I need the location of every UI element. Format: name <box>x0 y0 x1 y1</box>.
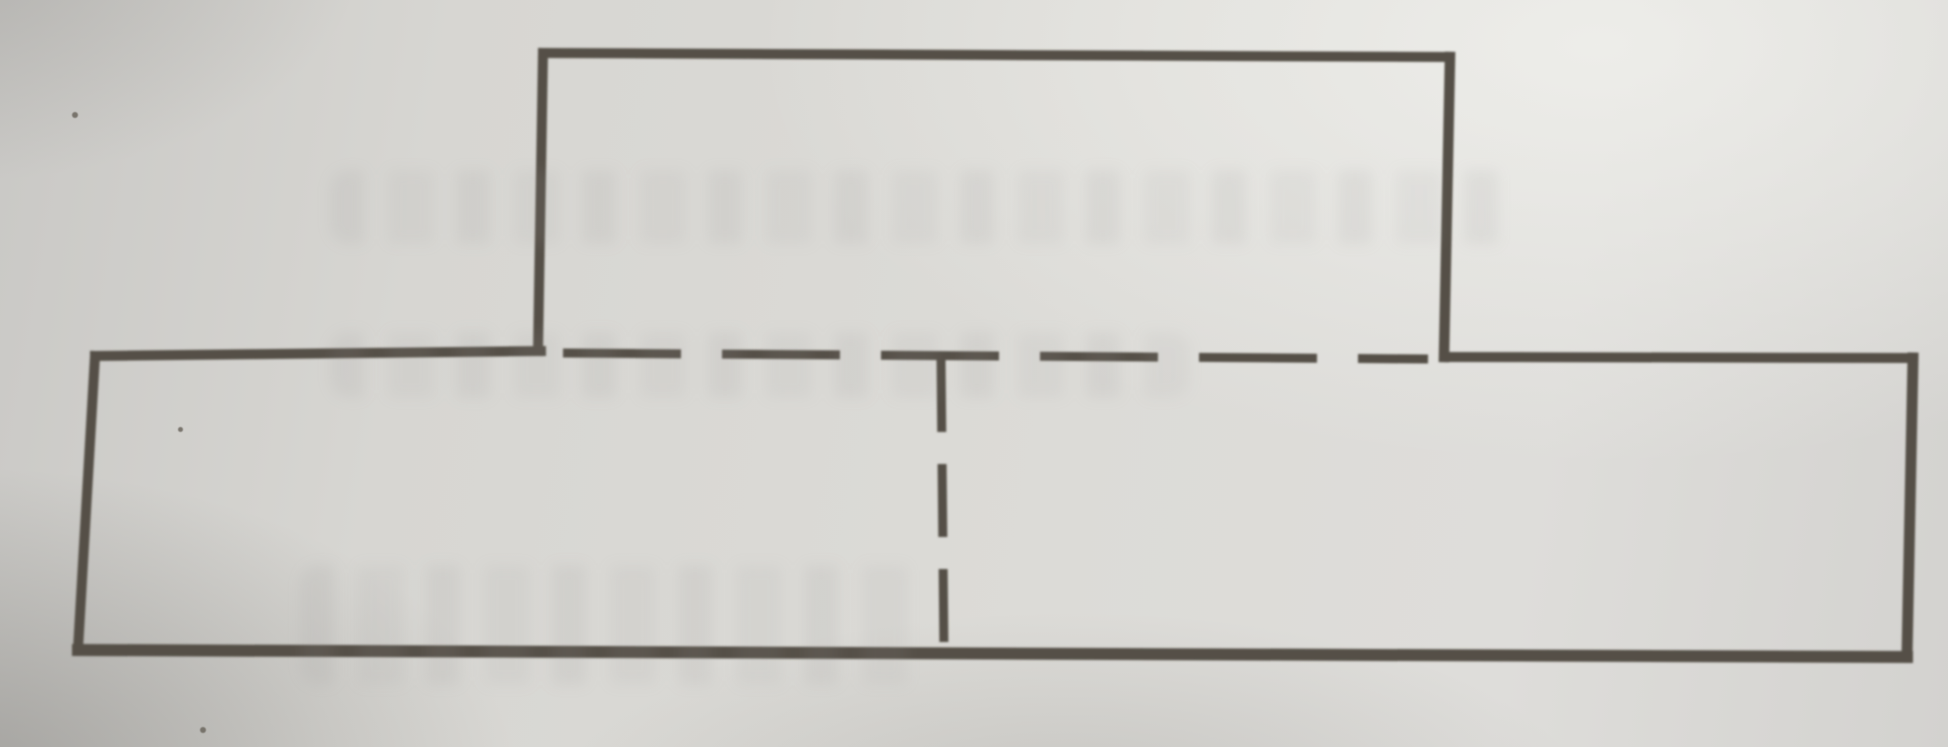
scanned-page-photo <box>0 0 1948 747</box>
top-rect-right-edge <box>1444 57 1450 357</box>
figure-line-group <box>78 53 1913 657</box>
bottom-rect-left-edge <box>78 356 95 649</box>
bottom-rect-right-edge <box>1907 358 1913 656</box>
bottom-rect-top-edge-left <box>95 351 541 356</box>
paper-speck <box>200 727 206 733</box>
paper-speck <box>178 427 183 432</box>
paper-speck <box>72 112 78 118</box>
vertical-midline-dashed-line <box>941 359 944 653</box>
bottom-rect-bottom-edge <box>78 650 1907 657</box>
top-rect-top-edge <box>543 53 1450 57</box>
top-rect-left-edge <box>538 53 543 351</box>
shared-edge-dashed-line <box>563 353 1428 359</box>
bottom-rect-top-edge-right <box>1444 357 1913 358</box>
composite-rectangles-figure <box>0 0 1948 747</box>
